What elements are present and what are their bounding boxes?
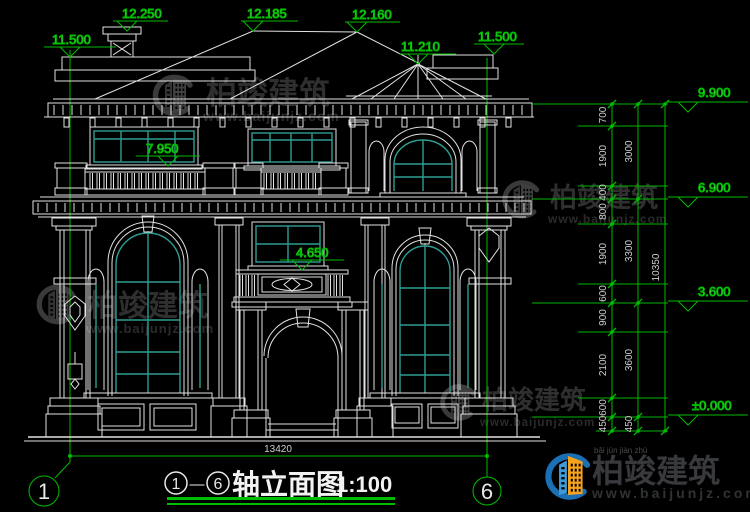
second-cornice — [33, 197, 531, 217]
svg-text:9.900: 9.900 — [698, 85, 731, 100]
level-marker-3600: 3.600 — [668, 284, 748, 311]
right-bay-windows — [370, 228, 480, 428]
chain-dim-label: 800 — [598, 203, 609, 220]
marker-turret: 11.210 — [399, 39, 456, 64]
right-dimension-chain: 7001900400800190060090021006004503000330… — [532, 85, 748, 435]
level-marker-9900: 9.900 — [668, 85, 748, 112]
chain-dim-label: 3600 — [624, 348, 635, 371]
turret-roof-ribs — [352, 64, 486, 99]
level-marker-0000: ±0.000 — [668, 398, 748, 425]
chain-dim-label: 2100 — [598, 353, 609, 376]
title-axis-start: 1 — [172, 476, 181, 493]
cad-elevation-drawing: 柏竣建筑 www.baijunjz.com 柏竣建筑 www.baijunjz.… — [0, 0, 750, 512]
page-title: 轴立面图 — [232, 468, 344, 500]
axis-bubble-1: 1 — [29, 476, 59, 506]
terrace-balustrade — [55, 163, 348, 195]
watermark-bottom: 柏竣建筑 www.baijunjz.com — [443, 385, 596, 429]
keystone-icon — [296, 309, 310, 327]
title-block: 1 — 6 轴立面图 1:100 — [165, 468, 395, 505]
title-underline — [167, 497, 395, 500]
balcony-motif-icon — [272, 279, 312, 291]
svg-text:6.900: 6.900 — [698, 180, 731, 195]
chain-dim-label: 1900 — [598, 144, 609, 167]
svg-text:12.160: 12.160 — [352, 7, 392, 22]
chain-dim-label: 450 — [598, 415, 609, 432]
svg-text:12.250: 12.250 — [122, 6, 162, 21]
svg-text:12.185: 12.185 — [247, 6, 287, 21]
shield-ornament-icon — [479, 228, 499, 262]
chain-dim-label: 10350 — [651, 253, 662, 281]
watermark-url: www.baijunjz.com — [479, 417, 595, 429]
cornice-dentils — [54, 105, 522, 115]
svg-text:4.650: 4.650 — [296, 245, 329, 260]
marker-right-parapet: 11.500 — [474, 29, 524, 54]
title-underline — [167, 503, 395, 505]
svg-text:7.950: 7.950 — [146, 141, 179, 156]
title-scale: 1:100 — [336, 472, 392, 497]
marker-ridge-left: 12.185 — [241, 6, 298, 31]
chain-dim-label: 1900 — [598, 242, 609, 265]
baijun-logo-icon — [156, 77, 190, 113]
watermark-right: 柏竣建筑 www.baijunjz.com — [505, 182, 668, 226]
chain-dim-label: 450 — [624, 415, 635, 432]
cad-elevation-screenshot: 柏竣建筑 www.baijunjz.com 柏竣建筑 www.baijunjz.… — [0, 0, 750, 512]
chain-dim-label: 600 — [598, 399, 609, 416]
cornice-dentils — [38, 203, 524, 212]
overall-width-dim: 13420 — [264, 444, 292, 455]
svg-text:3.600: 3.600 — [698, 284, 731, 299]
footer-brand: 柏竣建筑 — [592, 453, 720, 489]
pilaster-mid-left — [211, 218, 247, 437]
svg-text:11.500: 11.500 — [478, 29, 517, 44]
svg-text:11.210: 11.210 — [401, 39, 440, 54]
ground-line — [24, 437, 546, 441]
axis-bubble-6: 6 — [473, 477, 501, 505]
baijun-logo-icon — [505, 182, 537, 216]
watermark-url: www.baijunjz.com — [202, 108, 340, 124]
chain-dim-label: 700 — [598, 106, 609, 123]
watermark-brand: 柏竣建筑 — [482, 385, 586, 415]
svg-text:6: 6 — [481, 479, 493, 504]
footer-logo: bǎi jùn jiàn zhù 柏竣建筑 www.baijunjz.com — [548, 446, 750, 501]
svg-text:11.500: 11.500 — [52, 32, 91, 47]
marker-ridge-main: 12.160 — [345, 7, 400, 32]
balusters — [90, 173, 316, 189]
baijun-logo-icon — [548, 456, 587, 497]
svg-text:±0.000: ±0.000 — [692, 398, 732, 413]
title-separator: — — [190, 476, 205, 493]
chain-dim-label: 3000 — [624, 140, 635, 163]
chain-dim-label: 900 — [598, 309, 609, 326]
marker-left-parapet: 11.500 — [44, 32, 116, 57]
pilaster-mid-right — [357, 218, 393, 437]
svg-text:1: 1 — [38, 479, 50, 504]
chain-dim-label: 3300 — [624, 239, 635, 262]
level-marker-6900: 6.900 — [668, 180, 748, 207]
baijun-logo-icon — [39, 287, 72, 322]
chain-dim-label: 600 — [598, 285, 609, 302]
title-axis-end: 6 — [214, 476, 223, 493]
footer-url: www.baijunjz.com — [591, 485, 750, 501]
chain-dim-label: 400 — [598, 184, 609, 201]
bottom-dimension: 13420 — [68, 444, 489, 458]
